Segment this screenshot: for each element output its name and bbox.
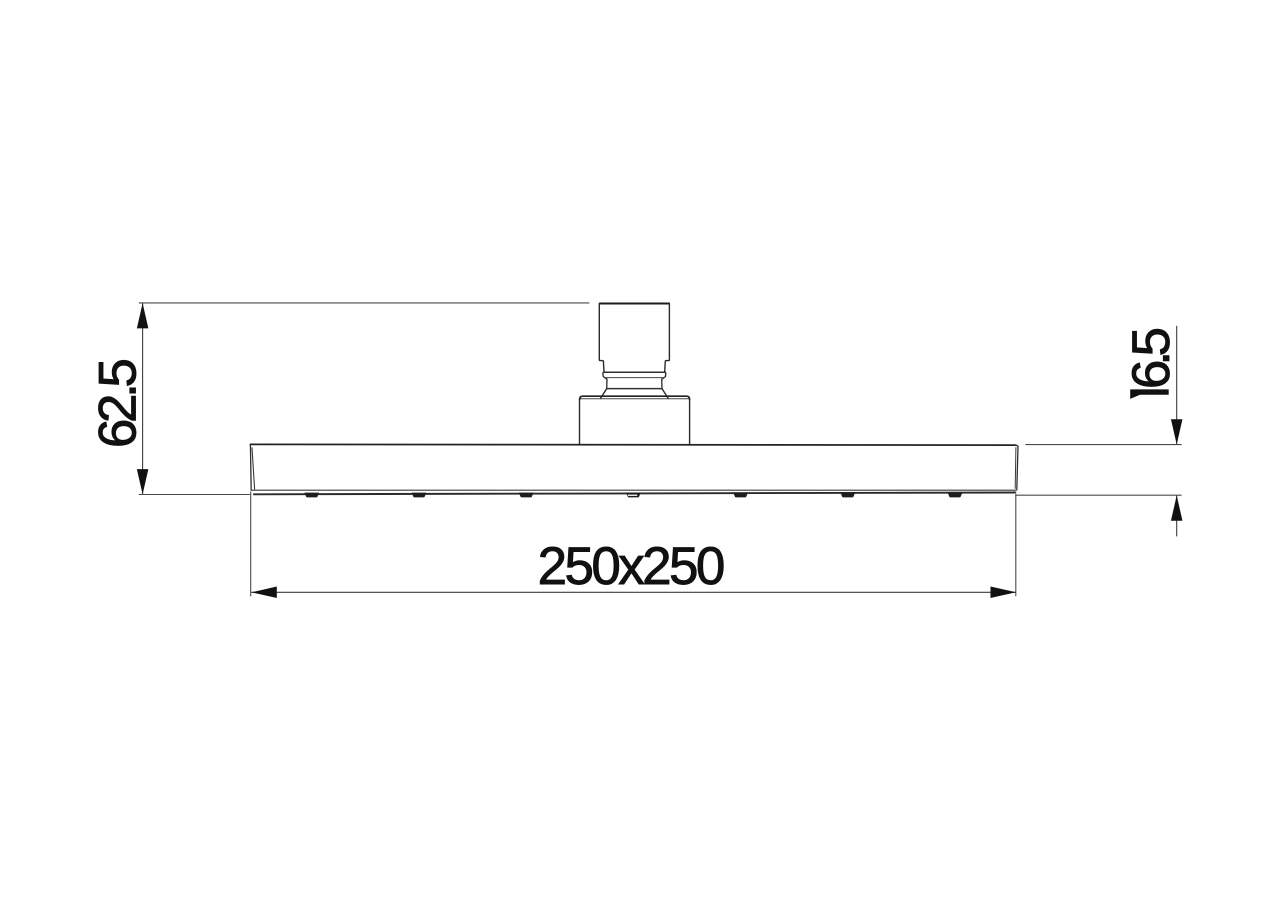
svg-text:250x250: 250x250 (538, 537, 726, 596)
svg-text:62.5: 62.5 (89, 360, 148, 448)
svg-text:5: 5 (1122, 327, 1181, 356)
